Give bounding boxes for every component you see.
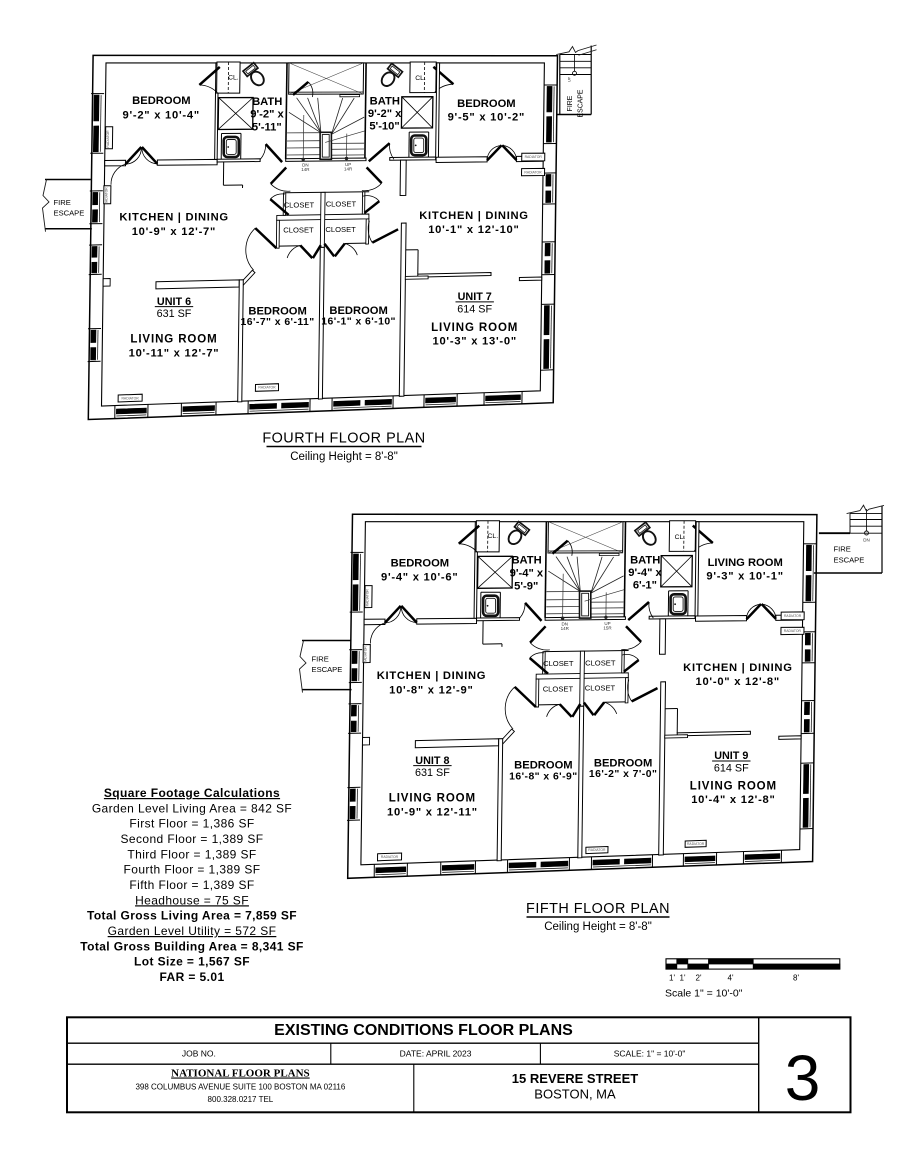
svg-text:Lot Size = 1,567 SF: Lot Size = 1,567 SF: [134, 955, 250, 969]
svg-text:CL.: CL.: [228, 74, 239, 81]
svg-text:631 SF: 631 SF: [157, 308, 192, 320]
svg-text:UNIT 8: UNIT 8: [415, 755, 449, 767]
svg-text:Garden Level Utility = 572 SF: Garden Level Utility = 572 SF: [108, 924, 277, 938]
svg-text:800.328.0217 TEL: 800.328.0217 TEL: [208, 1095, 274, 1104]
svg-text:1': 1': [669, 974, 675, 983]
svg-text:KITCHEN | DINING: KITCHEN | DINING: [419, 210, 528, 222]
svg-text:FIFTH FLOOR PLAN: FIFTH FLOOR PLAN: [526, 901, 670, 917]
svg-text:631 SF: 631 SF: [415, 767, 450, 779]
svg-text:Ceiling Height = 8'-8": Ceiling Height = 8'-8": [290, 451, 398, 463]
svg-text:EXISTING CONDITIONS FLOOR PLAN: EXISTING CONDITIONS FLOOR PLANS: [274, 1022, 573, 1039]
svg-text:BEDROOM: BEDROOM: [248, 306, 306, 318]
svg-text:16'-7" x 6'-11": 16'-7" x 6'-11": [241, 317, 315, 328]
svg-text:5'-10": 5'-10": [369, 121, 399, 133]
svg-text:9'-4" x: 9'-4" x: [510, 568, 544, 580]
svg-text:6'-1": 6'-1": [633, 580, 657, 592]
svg-text:DN: DN: [863, 538, 870, 543]
svg-text:9'-2" x: 9'-2" x: [368, 108, 402, 120]
svg-text:UNIT 9: UNIT 9: [714, 750, 748, 762]
svg-text:Fifth Floor = 1,389 SF: Fifth Floor = 1,389 SF: [129, 878, 254, 892]
svg-text:ESCAPE: ESCAPE: [578, 89, 585, 117]
svg-text:10'-9" x 12'-11": 10'-9" x 12'-11": [387, 807, 478, 819]
svg-text:Garden Level Living Area = 842: Garden Level Living Area = 842 SF: [92, 801, 292, 815]
svg-text:RADIATOR: RADIATOR: [258, 386, 276, 390]
svg-text:CLOSET: CLOSET: [284, 200, 315, 209]
svg-text:14R: 14R: [301, 167, 310, 172]
svg-text:BEDROOM: BEDROOM: [391, 557, 449, 569]
svg-text:9'-4" x 10'-6": 9'-4" x 10'-6": [381, 572, 458, 584]
svg-text:Third Floor = 1,389 SF: Third Floor = 1,389 SF: [127, 847, 256, 861]
svg-text:CLOSET: CLOSET: [326, 200, 357, 209]
svg-text:BEDROOM: BEDROOM: [594, 757, 652, 769]
svg-text:5'-11": 5'-11": [252, 122, 282, 134]
svg-text:CLOSET: CLOSET: [543, 659, 574, 668]
svg-text:16'-2" x 7'-0": 16'-2" x 7'-0": [589, 769, 657, 780]
svg-text:RADIATOR: RADIATOR: [784, 614, 802, 618]
svg-text:BEDROOM: BEDROOM: [514, 760, 572, 772]
svg-text:Square Footage Calculations: Square Footage Calculations: [104, 786, 280, 800]
svg-text:10'-8" x 12'-9": 10'-8" x 12'-9": [389, 685, 473, 697]
svg-text:FOURTH FLOOR PLAN: FOURTH FLOOR PLAN: [262, 431, 425, 447]
svg-text:FAR = 5.01: FAR = 5.01: [159, 970, 224, 984]
svg-text:ESCAPE: ESCAPE: [312, 665, 343, 674]
svg-text:10'-9" x 12'-7": 10'-9" x 12'-7": [132, 226, 216, 238]
svg-text:RADIATOR: RADIATOR: [121, 396, 139, 400]
svg-text:CLOSET: CLOSET: [585, 659, 616, 668]
svg-text:UNIT 7: UNIT 7: [458, 291, 492, 303]
svg-text:FIRE: FIRE: [834, 545, 851, 554]
svg-text:9'-4" x: 9'-4" x: [628, 567, 662, 579]
svg-text:RADIATOR: RADIATOR: [524, 170, 542, 174]
svg-text:JOB NO.: JOB NO.: [182, 1049, 216, 1059]
svg-text:LIVING ROOM: LIVING ROOM: [690, 780, 777, 792]
svg-text:10'-1" x 12'-10": 10'-1" x 12'-10": [428, 224, 519, 236]
svg-text:NATIONAL FLOOR PLANS: NATIONAL FLOOR PLANS: [171, 1068, 310, 1080]
svg-text:LIVING ROOM: LIVING ROOM: [130, 333, 217, 345]
svg-text:RADIATOR: RADIATOR: [364, 646, 368, 664]
svg-text:15 REVERE STREET: 15 REVERE STREET: [512, 1071, 638, 1086]
svg-text:CLOSET: CLOSET: [543, 684, 574, 693]
svg-text:FIRE: FIRE: [312, 655, 329, 664]
svg-text:14R: 14R: [344, 167, 353, 172]
svg-text:16'-1" x 6'-10": 16'-1" x 6'-10": [321, 317, 396, 328]
svg-text:RADIATOR: RADIATOR: [104, 187, 108, 205]
svg-text:ESCAPE: ESCAPE: [54, 209, 85, 218]
svg-text:RADIATOR: RADIATOR: [106, 130, 110, 148]
svg-text:BATH: BATH: [630, 554, 660, 566]
svg-text:RADIATOR: RADIATOR: [588, 848, 606, 852]
svg-text:Ceiling Height = 8'-8": Ceiling Height = 8'-8": [544, 921, 652, 933]
svg-text:CL.: CL.: [415, 75, 426, 82]
svg-text:8': 8': [793, 974, 799, 983]
svg-text:RADIATOR: RADIATOR: [784, 629, 802, 633]
svg-text:2': 2': [696, 974, 702, 983]
svg-text:5'-9": 5'-9": [514, 580, 538, 592]
svg-text:BOSTON, MA: BOSTON, MA: [534, 1087, 616, 1102]
svg-text:First Floor = 1,386 SF: First Floor = 1,386 SF: [129, 817, 254, 831]
svg-text:14R: 14R: [561, 626, 570, 631]
svg-text:FIRE: FIRE: [54, 198, 71, 207]
svg-text:3: 3: [785, 1042, 821, 1114]
svg-text:Total Gross Building Area = 8,: Total Gross Building Area = 8,341 SF: [80, 939, 303, 953]
svg-text:BATH: BATH: [370, 96, 400, 108]
svg-text:LIVING ROOM: LIVING ROOM: [708, 557, 783, 569]
svg-text:LIVING ROOM: LIVING ROOM: [431, 322, 518, 334]
svg-text:9'-2" x 10'-4": 9'-2" x 10'-4": [122, 109, 199, 121]
svg-text:CLOSET: CLOSET: [585, 684, 616, 693]
svg-text:CLOSET: CLOSET: [325, 225, 356, 234]
svg-text:Fourth Floor = 1,389 SF: Fourth Floor = 1,389 SF: [124, 863, 261, 877]
svg-text:398 COLUMBUS AVENUE SUITE 100: 398 COLUMBUS AVENUE SUITE 100 BOSTON MA …: [135, 1083, 345, 1092]
svg-text:BEDROOM: BEDROOM: [457, 98, 515, 110]
svg-text:SCALE: 1" = 10'-0": SCALE: 1" = 10'-0": [614, 1049, 686, 1059]
svg-text:UNIT 6: UNIT 6: [157, 296, 191, 308]
svg-text:CL.: CL.: [675, 534, 686, 541]
svg-text:ESCAPE: ESCAPE: [834, 556, 865, 565]
svg-text:KITCHEN | DINING: KITCHEN | DINING: [119, 212, 228, 224]
svg-text:KITCHEN | DINING: KITCHEN | DINING: [683, 662, 792, 674]
svg-text:10'-11" x 12'-7": 10'-11" x 12'-7": [129, 348, 220, 360]
svg-text:1': 1': [680, 974, 686, 983]
svg-text:KITCHEN | DINING: KITCHEN | DINING: [377, 670, 486, 682]
svg-text:10'-4" x 12'-8": 10'-4" x 12'-8": [691, 794, 775, 806]
svg-text:15R: 15R: [603, 625, 612, 630]
svg-text:RADIATOR: RADIATOR: [525, 155, 543, 159]
svg-text:FIRE: FIRE: [567, 95, 574, 111]
svg-text:DATE: APRIL 2023: DATE: APRIL 2023: [400, 1049, 472, 1059]
svg-text:UP: UP: [568, 76, 572, 82]
svg-text:Headhouse = 75 SF: Headhouse = 75 SF: [135, 893, 249, 907]
svg-text:10'-0" x 12'-8": 10'-0" x 12'-8": [695, 676, 779, 688]
svg-text:16'-8" x 6'-9": 16'-8" x 6'-9": [509, 771, 577, 782]
svg-text:9'-3" x 10'-1": 9'-3" x 10'-1": [706, 570, 783, 582]
svg-text:9'-5" x 10'-2": 9'-5" x 10'-2": [448, 112, 525, 124]
svg-text:Total Gross Living Area = 7,85: Total Gross Living Area = 7,859 SF: [87, 909, 297, 923]
svg-text:614 SF: 614 SF: [714, 763, 749, 775]
svg-text:BEDROOM: BEDROOM: [329, 305, 387, 317]
svg-text:BATH: BATH: [252, 96, 282, 108]
svg-text:9'-2" x: 9'-2" x: [250, 109, 284, 121]
svg-text:RADIATOR: RADIATOR: [365, 589, 369, 607]
svg-text:4': 4': [728, 974, 734, 983]
svg-text:BATH: BATH: [511, 555, 541, 567]
svg-text:RADIATOR: RADIATOR: [687, 842, 705, 846]
svg-text:CL.: CL.: [488, 533, 499, 540]
svg-text:RADIATOR: RADIATOR: [381, 855, 399, 859]
svg-text:LIVING ROOM: LIVING ROOM: [389, 792, 476, 804]
svg-text:CLOSET: CLOSET: [283, 226, 314, 235]
svg-text:Second Floor = 1,389 SF: Second Floor = 1,389 SF: [121, 832, 264, 846]
svg-text:Scale 1" = 10'-0": Scale 1" = 10'-0": [665, 988, 743, 1000]
svg-text:614 SF: 614 SF: [457, 304, 492, 316]
svg-text:BEDROOM: BEDROOM: [132, 95, 190, 107]
svg-text:10'-3" x 13'-0": 10'-3" x 13'-0": [432, 335, 516, 347]
